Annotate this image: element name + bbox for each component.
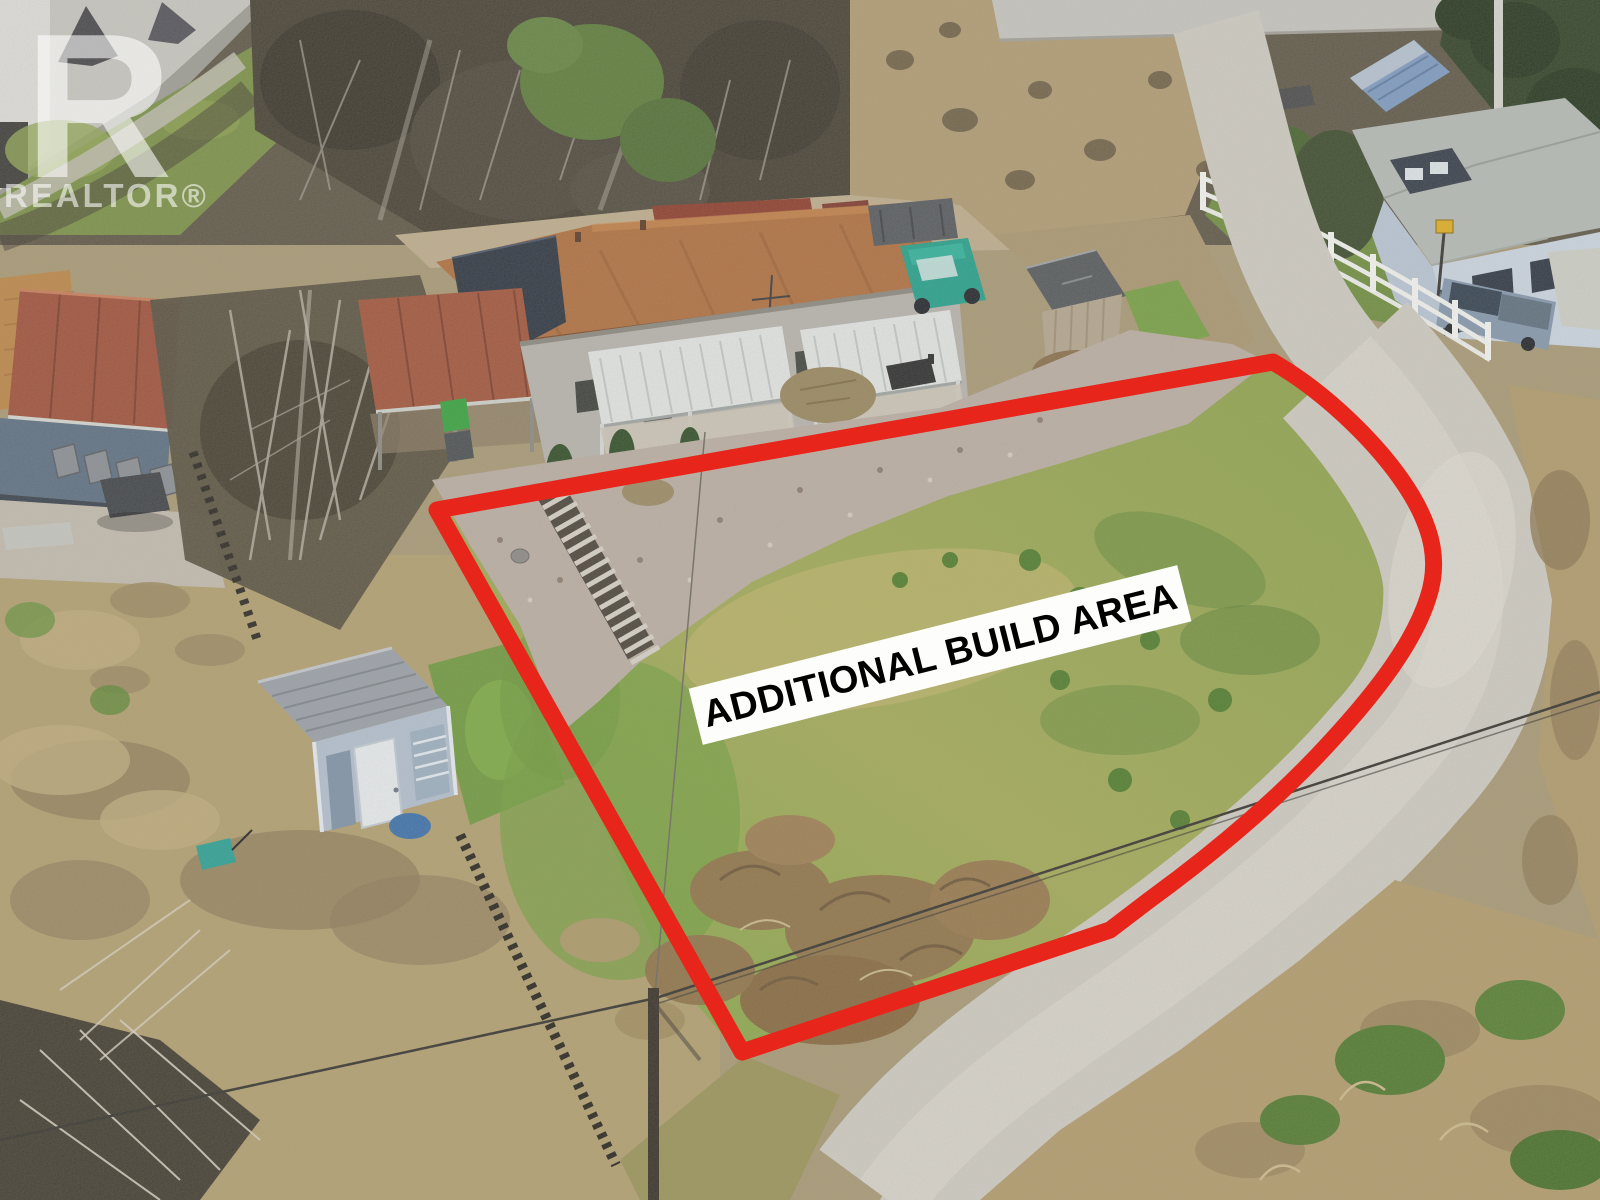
realtor-wordmark: REALTOR®	[4, 177, 209, 214]
photo-grain	[0, 0, 1600, 1200]
aerial-photo-canvas: ADDITIONAL BUILD AREA R REALTOR®	[0, 0, 1600, 1200]
real-estate-aerial-photo: ADDITIONAL BUILD AREA R REALTOR®	[0, 0, 1600, 1200]
